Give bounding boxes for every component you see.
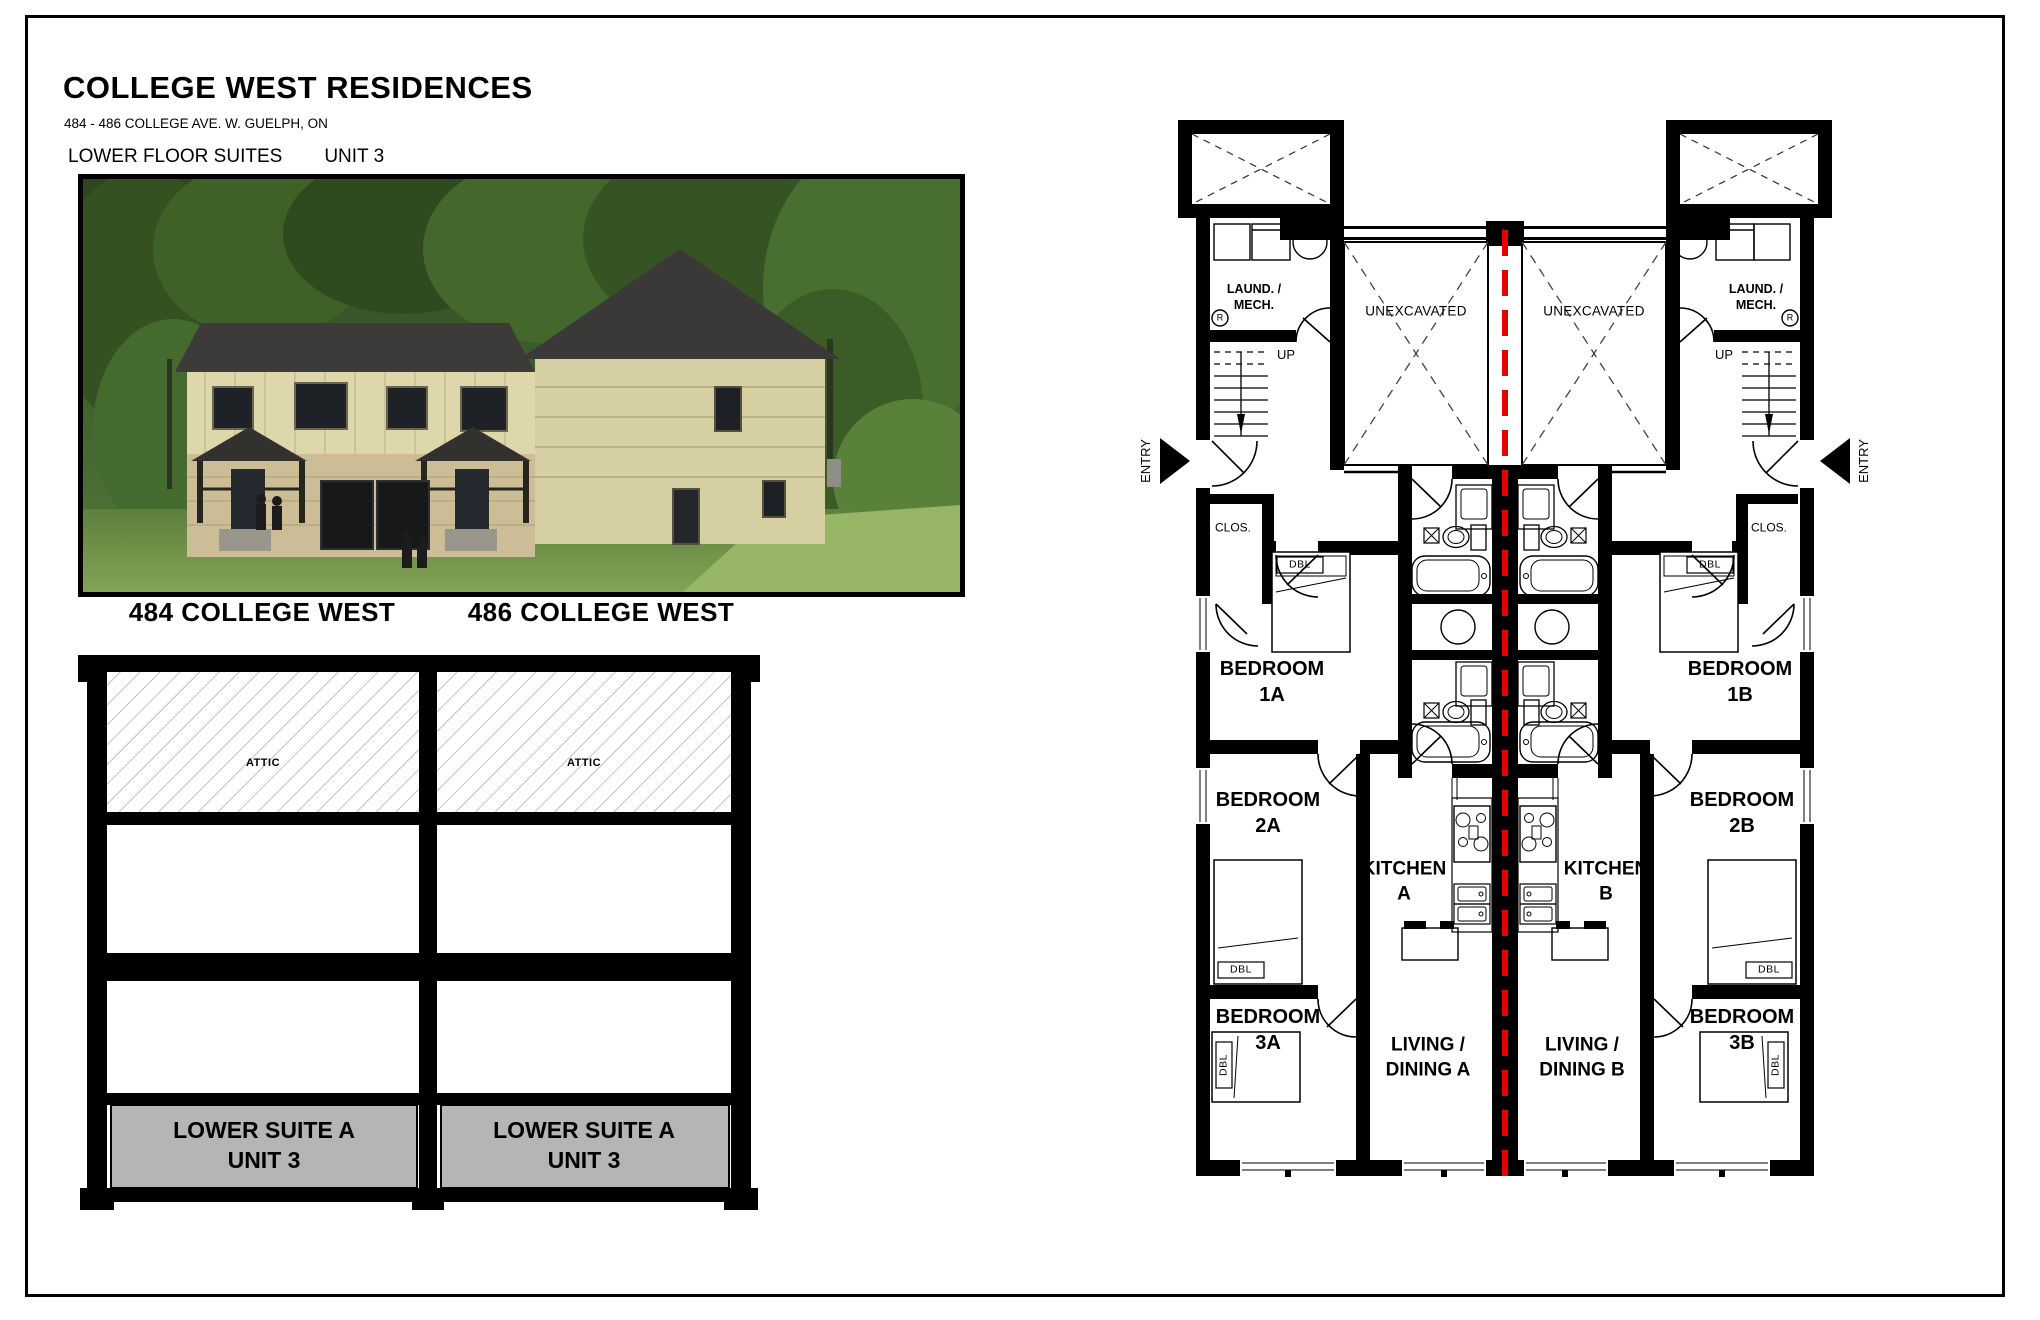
attic-label-left: ATTIC <box>246 757 280 771</box>
bedroom-1a-label: BEDROOM 1A <box>1220 656 1324 708</box>
sheet: COLLEGE WEST RESIDENCES 484 - 486 COLLEG… <box>0 0 2040 1320</box>
dbl-tag-2b: DBL <box>1758 963 1780 976</box>
closet-label-right: CLOS. <box>1751 521 1787 536</box>
dbl-tag-1a: DBL <box>1289 558 1311 571</box>
meter-label-left: R <box>1217 312 1224 323</box>
bedroom-3a-label: BEDROOM 3A <box>1216 1004 1320 1056</box>
dbl-tag-3b: DBL <box>1769 1054 1782 1076</box>
stairs-left <box>1214 352 1268 436</box>
bedroom-2a-label: BEDROOM 2A <box>1216 787 1320 839</box>
laundry-label-left: LAUND. / MECH. <box>1227 281 1281 314</box>
entry-arrow-left <box>1160 438 1190 484</box>
kitchen-b-label: KITCHEN B <box>1564 857 1648 906</box>
living-b-label: LIVING / DINING B <box>1539 1033 1625 1082</box>
living-a-label: LIVING / DINING A <box>1386 1033 1471 1082</box>
dbl-tag-3a: DBL <box>1217 1054 1230 1076</box>
lower-suite-label-right: LOWER SUITE A UNIT 3 <box>493 1116 675 1176</box>
kitchen-a-label: KITCHEN A <box>1362 857 1446 906</box>
dbl-tag-1b: DBL <box>1699 558 1721 571</box>
entry-label-right: ENTRY <box>1856 439 1872 483</box>
bedroom-1b-label: BEDROOM 1B <box>1688 656 1792 708</box>
caption-484: 484 COLLEGE WEST <box>129 596 396 629</box>
dbl-tag-2a: DBL <box>1230 963 1252 976</box>
bedroom-3b-label: BEDROOM 3B <box>1690 1004 1794 1056</box>
bedroom-2b-label: BEDROOM 2B <box>1690 787 1794 839</box>
caption-486: 486 COLLEGE WEST <box>468 596 735 629</box>
lower-suite-label-left: LOWER SUITE A UNIT 3 <box>173 1116 355 1176</box>
closet-label-left: CLOS. <box>1215 521 1251 536</box>
unexcavated-label-left: UNEXCAVATED <box>1365 304 1467 321</box>
attic-right-hatch <box>437 672 731 812</box>
up-label-right: UP <box>1715 347 1733 363</box>
meter-label-right: R <box>1787 312 1794 323</box>
unexcavated-label-right: UNEXCAVATED <box>1543 304 1645 321</box>
stairs-right <box>1742 352 1796 436</box>
entry-label-left: ENTRY <box>1138 439 1154 483</box>
attic-label-right: ATTIC <box>567 757 601 771</box>
attic-left-hatch <box>107 672 419 812</box>
entry-arrow-right <box>1820 438 1850 484</box>
up-label-left: UP <box>1277 347 1295 363</box>
laundry-label-right: LAUND. / MECH. <box>1729 281 1783 314</box>
